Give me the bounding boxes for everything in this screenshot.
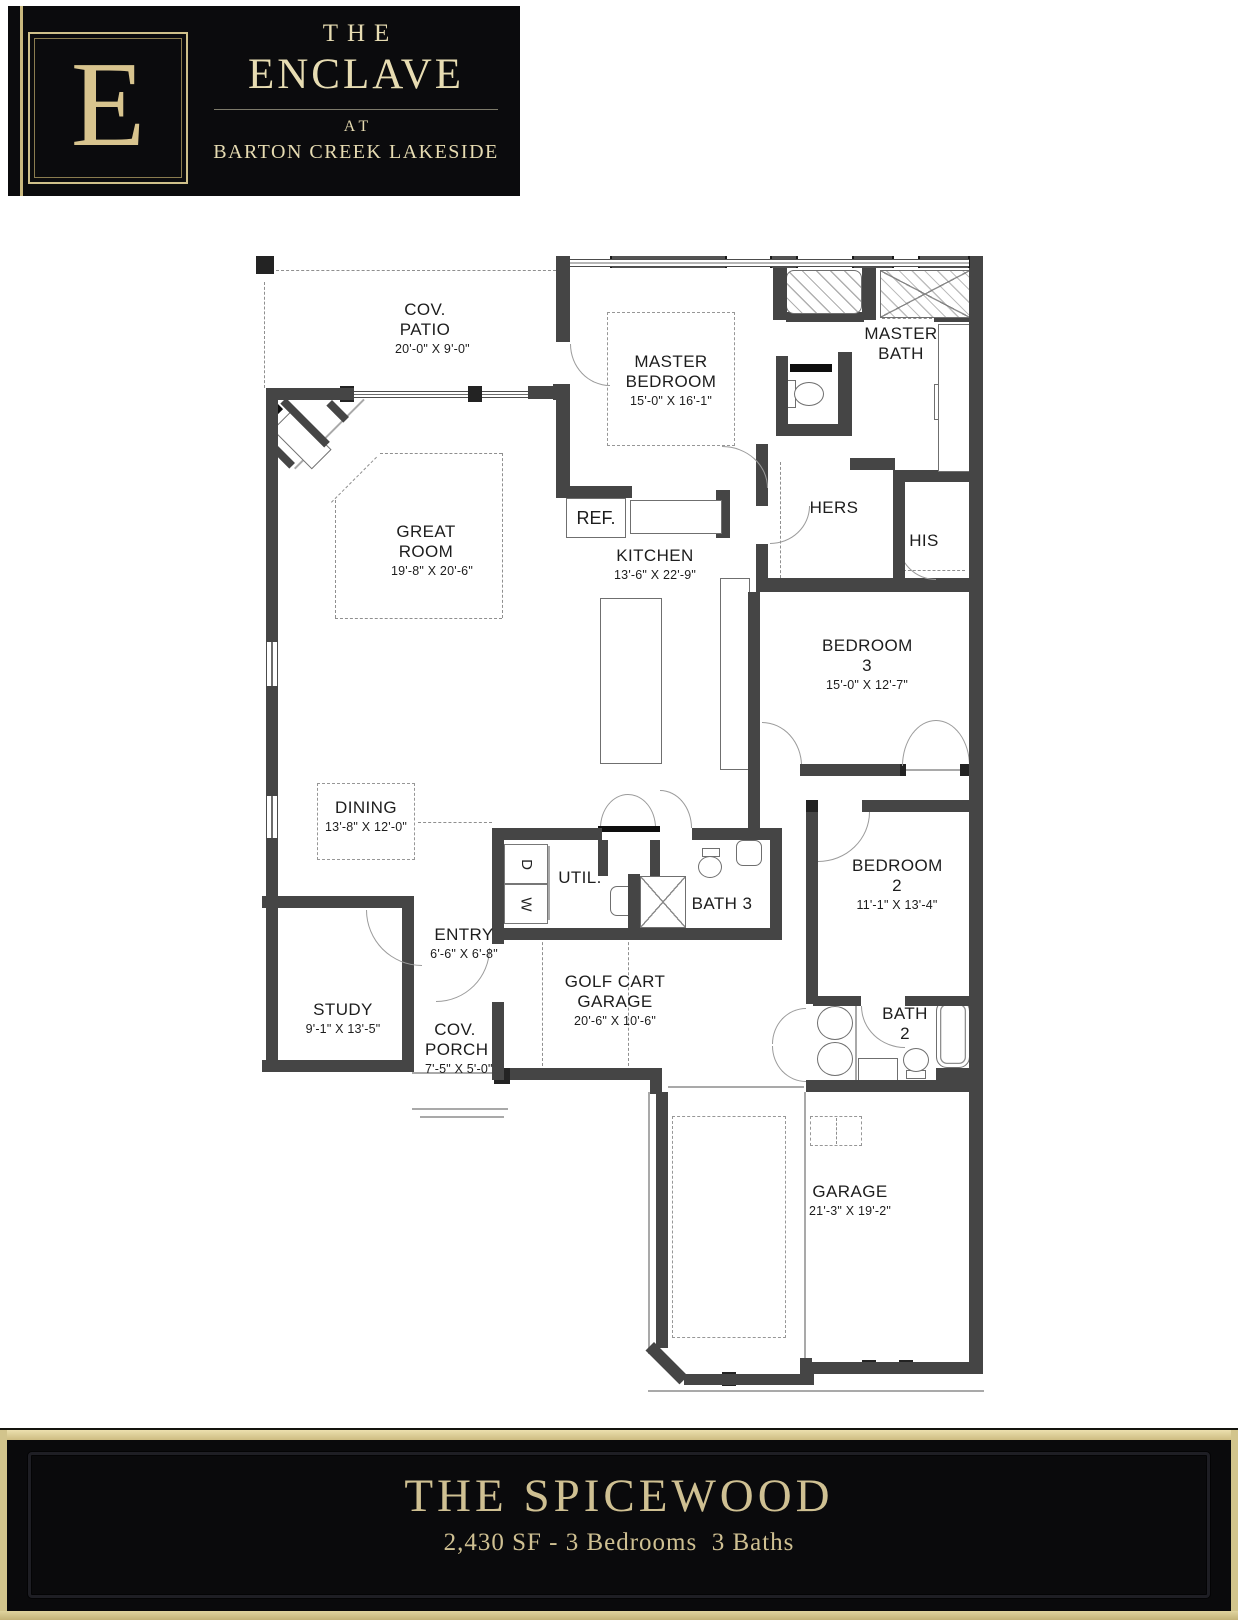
wall [528,386,570,399]
wall [838,352,852,436]
vanity-counter [938,324,970,472]
room-label-bath-3: BATH 3 [692,894,753,914]
window [482,391,528,398]
wall [492,928,782,940]
door-header-bar [790,364,832,372]
dashed-line [882,318,932,319]
banner-gold-right [1231,1430,1238,1620]
room-label-bath-2: BATH 2 [880,1004,930,1044]
dryer: D [504,844,548,884]
washer-letter: W [517,897,534,911]
door-swing-arc [628,794,656,828]
wall [692,828,782,840]
wall-post [468,386,482,402]
wall [806,996,818,1004]
room-label-study: STUDY 9'-1" X 13'-5" [306,1000,381,1036]
banner-gold-left [0,1430,7,1620]
floor-plan-page: E THE ENCLAVE AT BARTON CREEK LAKESIDE C… [0,0,1238,1620]
wall [402,908,414,942]
water-heater [817,1006,853,1040]
window [570,259,969,267]
room-label-master-bedroom: MASTER BEDROOM 15'-0" X 16'-1" [611,352,731,408]
door-swing-arc [902,720,936,766]
wall [800,764,900,776]
kitchen-island [600,598,662,764]
wall [806,1362,983,1374]
wall [646,1342,688,1384]
wall [748,592,760,776]
washer: W [504,884,548,924]
great-room-ceiling-chamfer [331,457,377,503]
fireplace-wall [326,400,349,423]
dryer-letter: D [518,859,535,870]
dashed-line [418,822,492,823]
room-label-kitchen: KITCHEN 13'-6" X 22'-9" [614,546,696,582]
wall [656,1092,668,1348]
wall-post [256,256,274,274]
wall [756,544,768,580]
window [266,796,278,838]
room-label-bedroom-3: BEDROOM 3 15'-0" X 12'-7" [822,636,912,692]
wall [862,800,972,812]
door-header-bar [598,826,660,832]
door-swing-arc [762,722,802,766]
door-swing-arc [936,720,970,766]
banner-gold-top [0,1430,1238,1440]
refrigerator: REF. [566,498,626,538]
room-label-hers: HERS [810,498,859,518]
outline-line [648,1092,650,1354]
wall [650,840,660,876]
wall [776,356,788,432]
dashed-line [335,500,336,618]
wall [492,1002,504,1080]
wall [806,1080,982,1092]
room-label-golf-cart-garage: GOLF CART GARAGE 20'-6" X 10'-6" [555,972,675,1028]
wall [266,388,354,400]
attic-access [810,1116,862,1146]
door-swing-arc [600,794,628,828]
dashed-line [335,618,502,619]
plan-title-banner: THE SPICEWOOD 2,430 SF - 3 Bedrooms 3 Ba… [0,1428,1238,1620]
dashed-line [380,453,502,454]
banner-gold-bottom [0,1611,1238,1620]
room-label-great-room: GREAT ROOM 19'-8" X 20'-6" [391,522,461,578]
dashed-line [542,932,543,1066]
plan-name: THE SPICEWOOD [31,1469,1207,1523]
outline-line [412,1108,508,1110]
window [266,642,278,686]
wall [266,838,278,1072]
room-label-entry: ENTRY 6'-6" X 6'-8" [430,925,498,961]
toilet [698,856,722,878]
kitchen-counter [630,500,722,534]
outline-line [648,1390,984,1392]
wall [969,256,983,1374]
wall [770,828,782,940]
dashed-line [903,570,965,571]
wall [756,578,972,592]
wall [266,686,278,796]
room-label-dining: DINING 13'-8" X 12'-0" [325,798,407,834]
bathtub [936,1000,970,1068]
dashed-line [264,282,265,388]
outline-line [668,1086,804,1088]
room-label-master-bath: MASTER BATH [861,324,941,364]
door-swing-arc [818,812,870,862]
window [354,391,468,398]
door-swing-arc [660,790,692,828]
wall [556,256,570,342]
room-label-cov-patio: COV. PATIO 20'-0" X 9'-0" [395,300,455,356]
dashed-line [502,453,503,618]
wall [813,996,861,1006]
room-label-util: UTIL. [558,868,602,888]
room-label-garage: GARAGE 21'-3" X 19'-2" [809,1182,891,1218]
banner-frame: THE SPICEWOOD 2,430 SF - 3 Bedrooms 3 Ba… [28,1452,1210,1598]
wall [262,1060,414,1072]
shower [640,876,686,928]
door-swing-arc [772,1046,806,1082]
master-shower [880,270,970,318]
kitchen-counter [720,578,750,770]
wall [748,774,760,830]
wall [262,896,414,908]
room-label-bedroom-2: BEDROOM 2 11'-1" X 13'-4" [852,856,942,912]
plan-specs: 2,430 SF - 3 Bedrooms 3 Baths [31,1529,1207,1557]
outline-line [855,1000,857,1084]
outline-line [804,1092,806,1358]
water-heater [817,1042,853,1076]
wall [684,1374,814,1385]
garage-bay-outline [672,1116,786,1338]
wall [893,482,905,584]
wall [266,398,278,642]
room-label-his: HIS [909,531,939,551]
master-bathtub [786,270,862,314]
toilet [903,1048,929,1072]
dashed-line [276,270,556,271]
sink [736,840,762,866]
wall-post [806,800,818,812]
toilet [794,382,824,406]
floor-plan: COV. PATIO 20'-0" X 9'-0" MASTER BEDROOM… [0,0,1238,1428]
wall [556,400,570,488]
wall [492,828,602,840]
outline-line [548,846,550,920]
door-swing-arc [770,506,810,544]
door-swing-arc [570,344,610,386]
outline-line [420,1116,504,1118]
room-label-cov-porch: COV. PORCH 7'-5" X 5'-0" [425,1020,485,1076]
outline-line [906,769,960,771]
wall [850,458,895,470]
wall [806,812,818,996]
door-swing-arc [772,1008,806,1044]
wall [504,1068,662,1080]
